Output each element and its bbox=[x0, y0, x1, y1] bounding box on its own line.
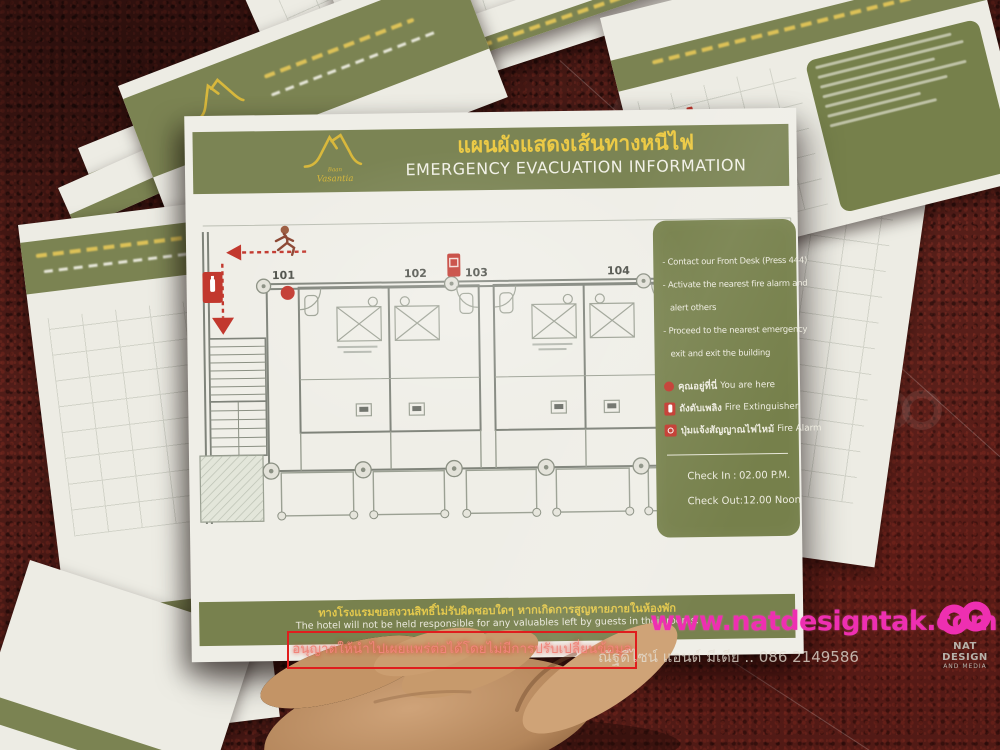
check-out-label: Check Out bbox=[687, 489, 739, 515]
annotation-text: อนุญาตให้นำไปเผยแพร่ต่อได้โดยไม่มีการปรั… bbox=[292, 641, 632, 657]
fire-extinguisher-icon bbox=[664, 402, 675, 415]
card-header: Baan Vasantia แผนผังแสดงเส้นทางหนีไฟ EME… bbox=[192, 124, 789, 194]
room-label-101: 101 bbox=[272, 269, 295, 282]
check-in-value: 02.00 P.M. bbox=[739, 463, 791, 489]
legend-row-extinguisher: ถังดับเพลิง Fire Extinguisher bbox=[664, 396, 789, 420]
legend-thai: ปุ่มแจ้งสัญญาณไฟไหม้ bbox=[681, 422, 775, 438]
instruction-line: - Proceed to the nearest emergency bbox=[663, 318, 788, 343]
legend-row-fire-alarm: ปุ่มแจ้งสัญญาณไฟไหม้ Fire Alarm bbox=[665, 418, 790, 442]
brand-subtitle: AND MEDIA bbox=[930, 663, 1000, 670]
fire-alarm-icon bbox=[665, 424, 677, 436]
annotation-permission-box: อนุญาตให้นำไปเผยแพร่ต่อได้โดยไม่มีการปรั… bbox=[287, 631, 637, 669]
fire-extinguisher-sign-icon bbox=[202, 272, 222, 303]
nat-design-logo: NAT DESIGN AND MEDIA bbox=[930, 600, 1000, 670]
card-titles: แผนผังแสดงเส้นทางหนีไฟ EMERGENCY EVACUAT… bbox=[372, 124, 779, 192]
room-label-104: 104 bbox=[607, 264, 630, 277]
running-man-icon bbox=[276, 226, 294, 255]
instructions: - Contact our Front Desk (Press 444) - A… bbox=[662, 249, 789, 366]
check-in-row: Check In : 02.00 P.M. bbox=[687, 463, 790, 489]
instruction-line: - Activate the nearest fire alarm and bbox=[662, 272, 787, 297]
legend-thai: คุณอยู่ที่นี่ bbox=[678, 378, 717, 394]
you-are-here-dot-icon bbox=[664, 381, 674, 391]
hotel-logo-text: Baan Vasantia bbox=[303, 168, 367, 184]
legend-english: Fire Alarm bbox=[777, 423, 822, 434]
evacuation-card: Baan Vasantia แผนผังแสดงเส้นทางหนีไฟ EME… bbox=[184, 108, 804, 662]
instruction-line: alert others bbox=[663, 295, 788, 320]
room-label-102: 102 bbox=[404, 267, 427, 280]
hotel-logo: Baan Vasantia bbox=[296, 132, 371, 191]
colon: : bbox=[730, 464, 739, 489]
legend: คุณอยู่ที่นี่ You are here ถังดับเพลิง F… bbox=[664, 374, 790, 442]
check-in-label: Check In bbox=[687, 464, 731, 490]
panel-divider bbox=[667, 453, 788, 456]
hotel-name-line2: Vasantia bbox=[303, 174, 367, 183]
brand-name: NAT DESIGN bbox=[930, 641, 1000, 663]
mini-info-panel bbox=[805, 19, 1000, 213]
agency-contact-line: ณัฐดีไซน์ แอนด์ มีเดีย .. 086 2149586 bbox=[598, 645, 859, 669]
instruction-line: - Contact our Front Desk (Press 444) bbox=[662, 249, 787, 274]
check-out-value: 12.00 Noon bbox=[743, 488, 801, 514]
mountain-logo-icon bbox=[296, 132, 371, 171]
room-label-103: 103 bbox=[465, 266, 488, 279]
legend-row-you-are-here: คุณอยู่ที่นี่ You are here bbox=[664, 374, 789, 398]
check-out-row: Check Out : 12.00 Noon bbox=[687, 488, 790, 514]
fire-alarm-box-icon bbox=[447, 253, 460, 276]
infinity-logo-icon bbox=[933, 600, 997, 636]
info-panel: - Contact our Front Desk (Press 444) - A… bbox=[653, 219, 800, 538]
hotel-name-line1: Baan bbox=[303, 168, 367, 174]
legend-english: You are here bbox=[720, 380, 775, 391]
photo-scene: Baan Vasantia แผนผังแสดงเส้นทางหนีไฟ EME… bbox=[0, 0, 1000, 750]
legend-english: Fire Extinguisher bbox=[725, 402, 799, 413]
instruction-line: exit and exit the building bbox=[663, 341, 788, 366]
legend-thai: ถังดับเพลิง bbox=[679, 400, 722, 416]
